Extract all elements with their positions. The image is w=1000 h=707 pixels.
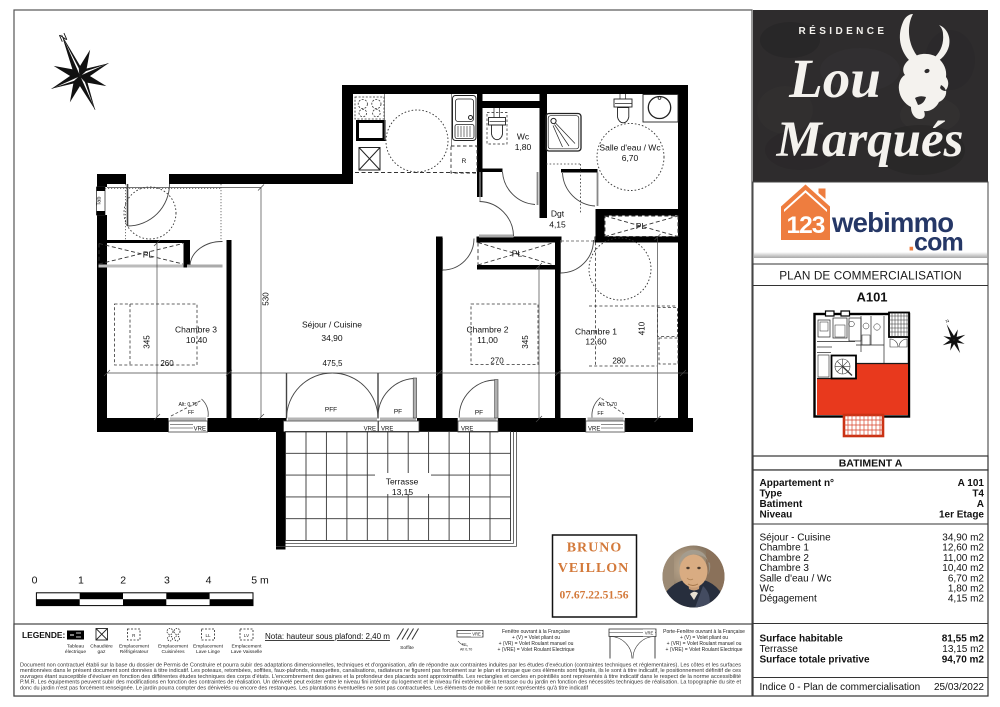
svg-text:Séjour / Cuisine: Séjour / Cuisine xyxy=(302,320,362,330)
svg-text:Chambre 3: Chambre 3 xyxy=(175,325,217,335)
svg-text:Alt 0,70: Alt 0,70 xyxy=(460,648,472,652)
svg-text:Réfrigérateur: Réfrigérateur xyxy=(120,649,149,655)
svg-text:PFF: PFF xyxy=(325,407,337,414)
svg-text:PL: PL xyxy=(636,221,647,231)
svg-text:Emplacement: Emplacement xyxy=(119,644,150,650)
svg-text:Terrasse: Terrasse xyxy=(760,644,799,655)
svg-text:Cuisinères: Cuisinères xyxy=(161,649,185,655)
svg-text:3: 3 xyxy=(164,575,170,587)
svg-text:Emplacement: Emplacement xyxy=(232,644,263,650)
svg-text:475,5: 475,5 xyxy=(322,359,343,368)
svg-text:Alt: 0,70: Alt: 0,70 xyxy=(178,402,197,408)
svg-text:13,15: 13,15 xyxy=(392,487,414,497)
svg-text:Lave Vaisselle: Lave Vaisselle xyxy=(231,649,262,655)
svg-text:10,40: 10,40 xyxy=(186,335,208,345)
svg-text:270: 270 xyxy=(490,357,504,366)
svg-text:07.67.22.51.56: 07.67.22.51.56 xyxy=(560,590,629,602)
svg-text:Emplacement: Emplacement xyxy=(158,644,189,650)
svg-text:.com: .com xyxy=(908,229,963,257)
svg-text:VEILLON: VEILLON xyxy=(558,561,630,576)
svg-text:Lou: Lou xyxy=(788,48,881,109)
svg-text:A101: A101 xyxy=(856,290,887,305)
svg-text:Terrasse: Terrasse xyxy=(386,477,419,487)
svg-text:Chambre 1: Chambre 1 xyxy=(575,327,617,337)
svg-text:94,70 m2: 94,70 m2 xyxy=(942,655,985,666)
svg-text:Surface totale privative: Surface totale privative xyxy=(760,655,870,666)
svg-text:donc du jardin n'est pas forcé: donc du jardin n'est pas forcément rense… xyxy=(20,685,589,691)
svg-text:2: 2 xyxy=(120,575,126,587)
svg-text:Emplacement: Emplacement xyxy=(193,644,224,650)
svg-text:1,80: 1,80 xyxy=(515,142,532,152)
svg-text:81,55 m2: 81,55 m2 xyxy=(942,634,985,645)
svg-text:260: 260 xyxy=(160,359,174,368)
svg-text:PL: PL xyxy=(143,250,154,260)
svg-text:Soffite: Soffite xyxy=(400,645,414,651)
svg-text:VRE: VRE xyxy=(588,427,600,433)
svg-text:25/03/2022: 25/03/2022 xyxy=(934,682,984,693)
svg-text:VRE: VRE xyxy=(194,427,206,433)
svg-text:Batiment: Batiment xyxy=(760,499,803,510)
svg-text:Wc: Wc xyxy=(517,132,530,142)
svg-text:13,15 m2: 13,15 m2 xyxy=(942,644,984,655)
svg-text:12,60: 12,60 xyxy=(585,337,607,347)
svg-text:Chaudière: Chaudière xyxy=(90,644,113,650)
svg-text:123: 123 xyxy=(787,212,825,239)
svg-text:Tab: Tab xyxy=(97,197,103,206)
svg-text:Nota: hauteur sous plafond: 2,: Nota: hauteur sous plafond: 2,40 m xyxy=(265,632,390,641)
svg-text:345: 345 xyxy=(521,335,530,349)
svg-text:345: 345 xyxy=(143,335,152,349)
svg-text:FF: FF xyxy=(597,411,603,417)
svg-text:BRUNO: BRUNO xyxy=(567,541,623,556)
svg-text:LEGENDE:: LEGENDE: xyxy=(22,630,65,640)
svg-text:Chambre 2: Chambre 2 xyxy=(466,325,508,335)
svg-text:Dégagement: Dégagement xyxy=(760,594,817,605)
svg-text:0: 0 xyxy=(32,575,38,587)
svg-text:VRE: VRE xyxy=(472,632,481,637)
svg-text:11,00: 11,00 xyxy=(477,335,498,345)
svg-text:Alt: 0,70: Alt: 0,70 xyxy=(598,402,617,408)
svg-text:4,15 m2: 4,15 m2 xyxy=(948,594,985,605)
svg-text:PF: PF xyxy=(475,410,483,417)
svg-text:N: N xyxy=(57,31,69,45)
svg-text:5 m: 5 m xyxy=(251,575,269,587)
svg-text:gaz: gaz xyxy=(98,650,106,655)
svg-text:+ (VRE) = Volet Roulant Electr: + (VRE) = Volet Roulant Electrique xyxy=(498,647,575,653)
svg-text:Dgt: Dgt xyxy=(551,209,565,219)
svg-text:T4: T4 xyxy=(972,489,984,500)
svg-text:PL: PL xyxy=(512,249,523,259)
svg-text:PLAN DE COMMERCIALISATION: PLAN DE COMMERCIALISATION xyxy=(779,269,962,283)
svg-text:Surface habitable: Surface habitable xyxy=(760,634,844,645)
svg-text:RÉSIDENCE: RÉSIDENCE xyxy=(799,24,888,37)
svg-text:530: 530 xyxy=(262,292,271,306)
svg-text:Appartement n°: Appartement n° xyxy=(760,478,835,489)
svg-text:4: 4 xyxy=(206,575,212,587)
svg-text:FF: FF xyxy=(188,410,194,416)
svg-text:A: A xyxy=(977,499,984,510)
svg-text:34,90: 34,90 xyxy=(321,333,343,343)
svg-text:PF: PF xyxy=(394,409,402,416)
svg-text:LL: LL xyxy=(205,633,211,638)
svg-text:1er Etage: 1er Etage xyxy=(939,510,984,521)
svg-text:BATIMENT A: BATIMENT A xyxy=(839,458,903,470)
svg-text:électrique: électrique xyxy=(65,649,86,655)
svg-text:280: 280 xyxy=(612,357,626,366)
svg-text:Salle d'eau / Wc: Salle d'eau / Wc xyxy=(599,143,661,153)
svg-text:LV: LV xyxy=(244,633,249,638)
svg-text:Type: Type xyxy=(760,489,783,500)
svg-text:410: 410 xyxy=(638,321,647,335)
svg-text:1: 1 xyxy=(78,575,84,587)
svg-text:Indice 0 - Plan de commerciali: Indice 0 - Plan de commercialisation xyxy=(760,682,921,693)
svg-text:R: R xyxy=(462,158,467,165)
svg-text:VRE: VRE xyxy=(645,631,654,636)
svg-text:Tableau: Tableau xyxy=(67,644,84,650)
svg-text:6,70: 6,70 xyxy=(622,153,639,163)
svg-text:Lave Linge: Lave Linge xyxy=(196,649,220,655)
svg-text:Marqués: Marqués xyxy=(775,112,963,168)
svg-text:4,15: 4,15 xyxy=(549,220,566,230)
svg-text:+ (VRE) = Volet Roulant Electr: + (VRE) = Volet Roulant Electrique xyxy=(666,647,743,653)
svg-text:Niveau: Niveau xyxy=(760,510,793,521)
svg-text:A 101: A 101 xyxy=(958,478,985,489)
